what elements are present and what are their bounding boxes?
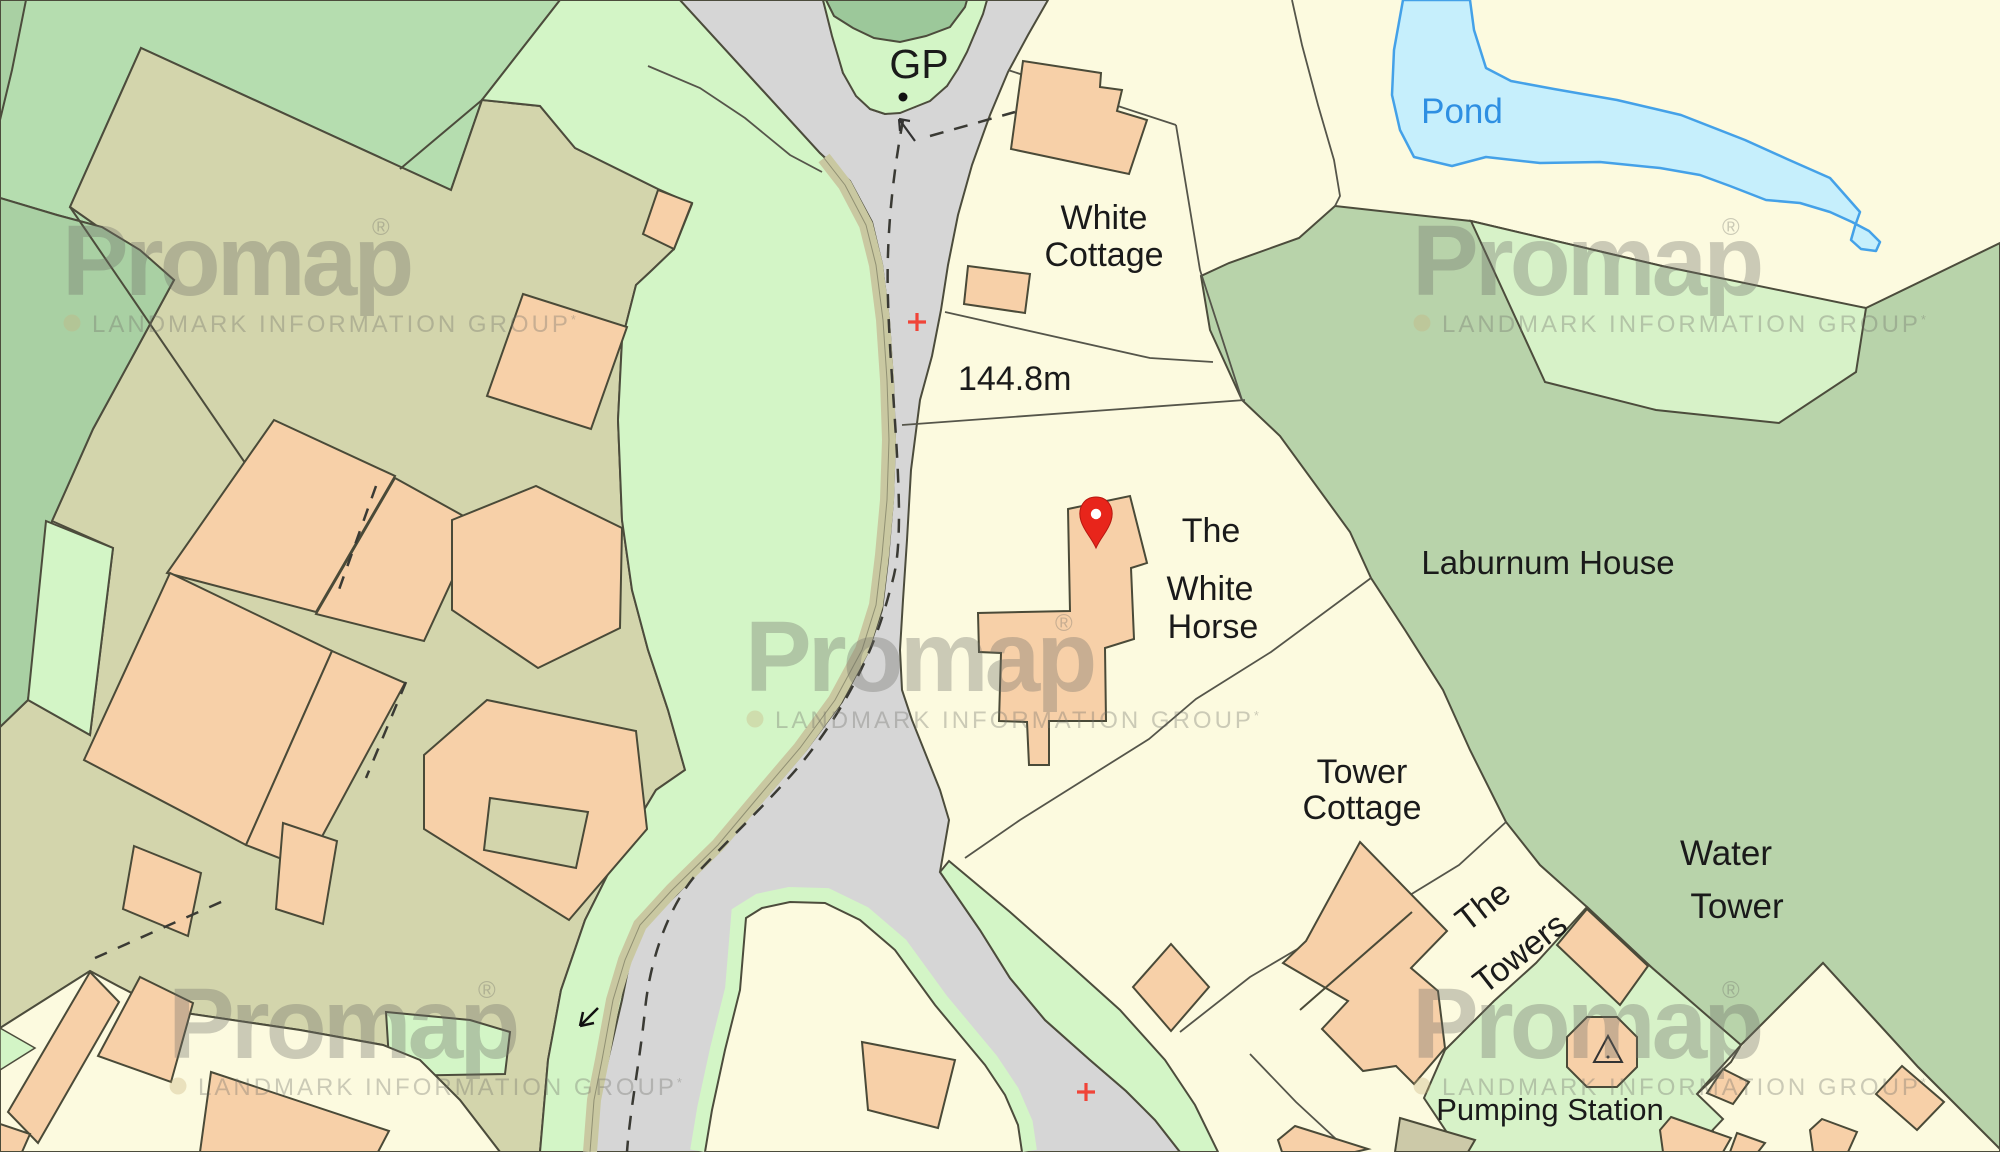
svg-text:Water: Water: [1680, 834, 1772, 873]
svg-text:LANDMARK INFORMATION GROUP*: LANDMARK INFORMATION GROUP*: [775, 707, 1262, 734]
svg-text:Horse: Horse: [1168, 608, 1259, 646]
svg-text:Cottage: Cottage: [1044, 236, 1163, 274]
svg-text:Promap: Promap: [62, 205, 410, 317]
svg-text:GP: GP: [889, 41, 948, 87]
svg-text:Promap: Promap: [1412, 968, 1760, 1080]
svg-text:Tower: Tower: [1690, 887, 1784, 926]
svg-text:144.8m: 144.8m: [958, 360, 1071, 398]
svg-text:®: ®: [1055, 610, 1073, 637]
svg-text:LANDMARK INFORMATION GROUP*: LANDMARK INFORMATION GROUP*: [92, 311, 579, 338]
svg-text:LANDMARK INFORMATION GROUP*: LANDMARK INFORMATION GROUP*: [1442, 311, 1929, 338]
svg-text:Cottage: Cottage: [1302, 789, 1421, 827]
svg-text:Pumping Station: Pumping Station: [1436, 1092, 1663, 1127]
svg-text:Promap: Promap: [168, 968, 516, 1080]
svg-text:White: White: [1061, 199, 1148, 237]
svg-text:Promap: Promap: [745, 601, 1093, 713]
svg-text:®: ®: [1722, 214, 1740, 241]
svg-text:®: ®: [478, 977, 496, 1004]
svg-text:®: ®: [372, 214, 390, 241]
svg-text:White: White: [1167, 570, 1254, 608]
svg-text:Laburnum House: Laburnum House: [1421, 544, 1674, 581]
svg-text:LANDMARK INFORMATION GROUP*: LANDMARK INFORMATION GROUP*: [198, 1074, 685, 1101]
svg-text:®: ®: [1722, 977, 1740, 1004]
svg-text:The: The: [1182, 512, 1241, 550]
svg-text:Tower: Tower: [1317, 753, 1408, 791]
svg-text:Pond: Pond: [1421, 92, 1503, 131]
svg-text:Promap: Promap: [1412, 205, 1760, 317]
